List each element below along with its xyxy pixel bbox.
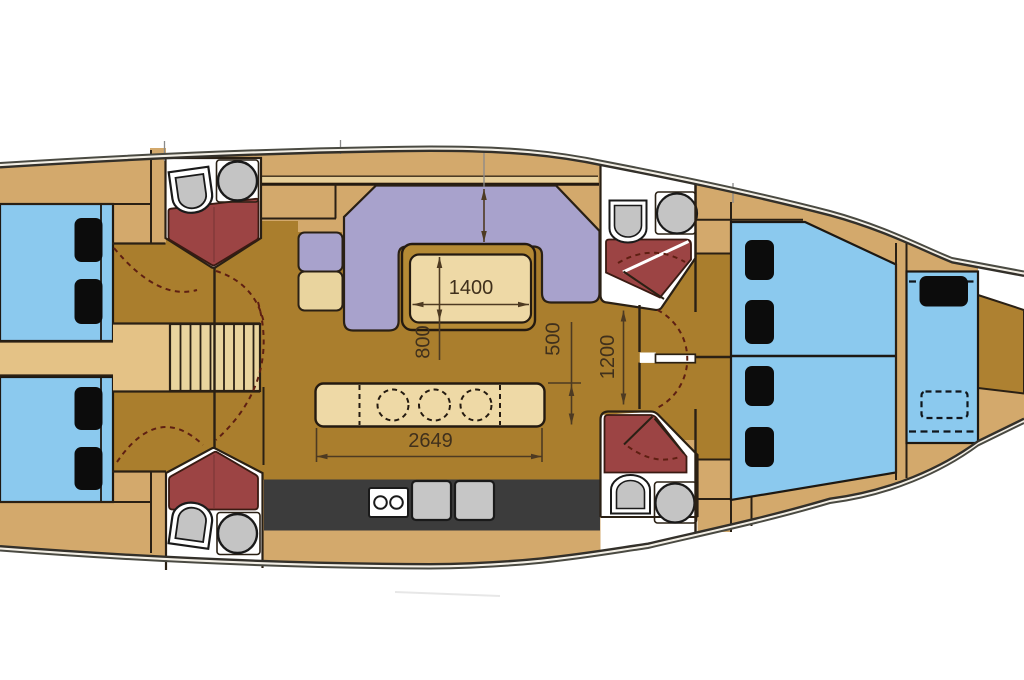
svg-text:500: 500: [543, 322, 565, 355]
svg-text:2649: 2649: [408, 430, 453, 452]
svg-text:800: 800: [413, 325, 435, 358]
svg-text:1400: 1400: [449, 277, 494, 299]
svg-text:1200: 1200: [597, 335, 619, 380]
